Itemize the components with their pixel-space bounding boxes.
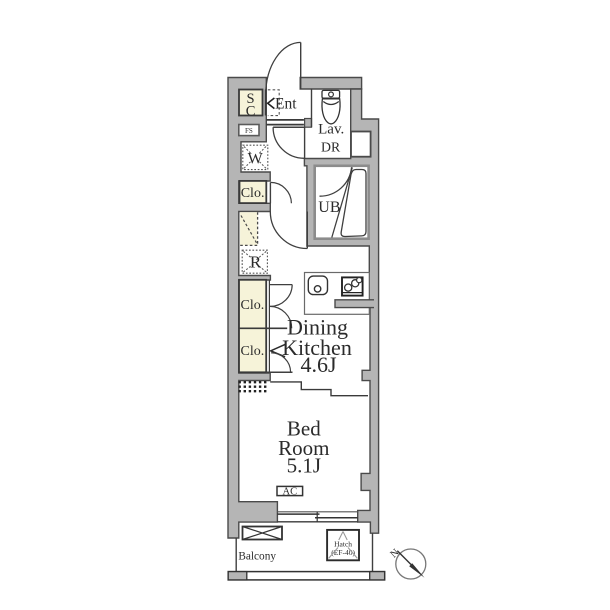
svg-text:4.6J: 4.6J (300, 352, 337, 377)
svg-text:5.1J: 5.1J (287, 454, 321, 478)
svg-text:FS: FS (245, 127, 253, 135)
svg-text:Clo.: Clo. (241, 298, 265, 313)
svg-text:W: W (248, 151, 264, 168)
svg-text:Lav.: Lav. (318, 122, 344, 138)
svg-text:C: C (246, 103, 256, 119)
svg-text:Ent: Ent (275, 95, 297, 112)
svg-text:DR: DR (321, 139, 341, 154)
svg-text:Clo.: Clo. (241, 186, 265, 201)
svg-text:UB: UB (318, 199, 340, 216)
svg-text:AC: AC (283, 487, 298, 498)
svg-text:Clo.: Clo. (241, 344, 265, 359)
svg-text:Balcony: Balcony (238, 551, 276, 563)
svg-text:R: R (250, 253, 262, 272)
